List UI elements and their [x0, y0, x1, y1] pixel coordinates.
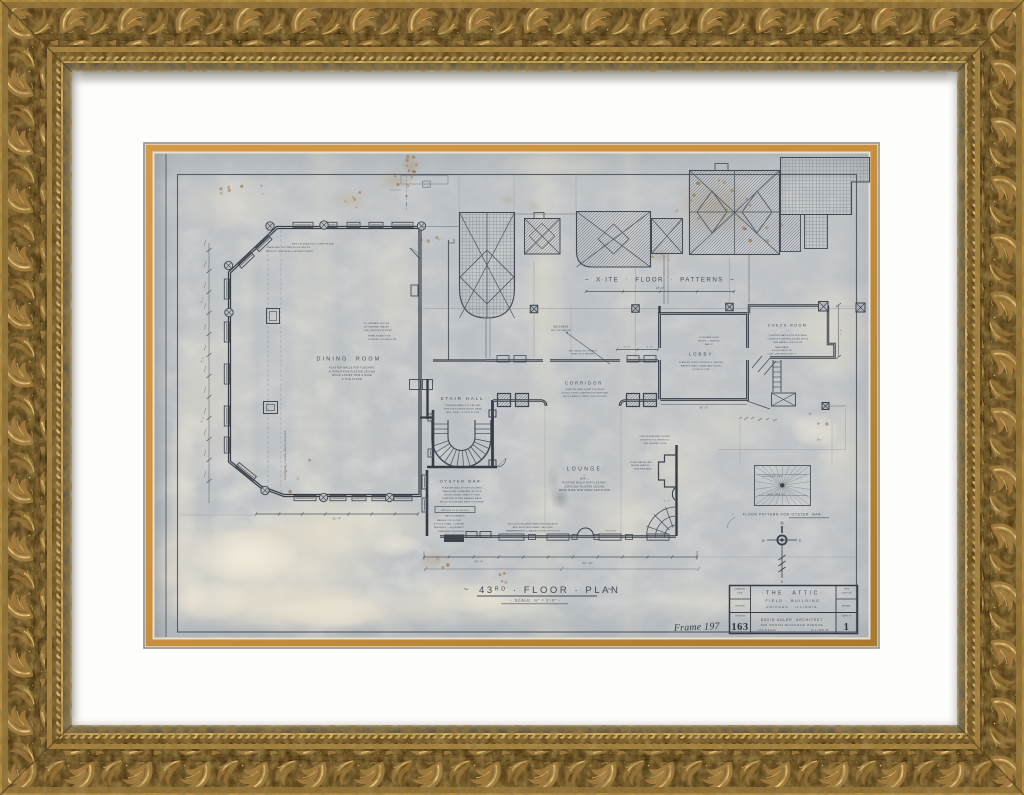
svg-text:31'-4″: 31'-4″ — [332, 518, 341, 521]
svg-text:~ X·ITE · FLOOR · PATTERN: ~ X·ITE · FLOOR · PATTERNS ~ — [585, 277, 736, 284]
svg-text:HERE FULL HEIGHT: HERE FULL HEIGHT — [572, 354, 596, 356]
svg-text:WEST ELEVATION & CORNICE AND: WEST ELEVATION & CORNICE AND — [292, 243, 335, 246]
svg-text:CHICAGO ILLINOIS·: CHICAGO ILLINOIS· — [766, 605, 820, 609]
svg-text:CORRIDOR: CORRIDOR — [565, 381, 603, 386]
svg-text:· SCALE ¼″ = 1′-0″ ·: · SCALE ¼″ = 1′-0″ · — [511, 599, 561, 603]
svg-text:6 INCH BLACK TILES: 6 INCH BLACK TILES — [762, 475, 783, 478]
svg-text:~: ~ — [732, 513, 734, 517]
svg-text:·LOBBY·: ·LOBBY· — [685, 352, 717, 357]
svg-text:DRAWN BY: DRAWN BY — [735, 588, 747, 591]
svg-text:PLASTERED COLUMN UNDER TRUSSES: PLASTERED COLUMN UNDER TRUSSES — [284, 430, 287, 480]
svg-text:PLASTER WALLS FOR FLECHING: PLASTER WALLS FOR FLECHING — [565, 388, 604, 391]
svg-text:STOOLS & RAIL COUNTER: STOOLS & RAIL COUNTER — [434, 522, 465, 525]
svg-text:1: 1 — [844, 622, 850, 633]
svg-text:·FLOOR PATTERN FOR OYSTER BAR: ·FLOOR PATTERN FOR OYSTER BAR· — [741, 513, 823, 517]
svg-text:CHICAGO: CHICAGO — [758, 628, 777, 632]
svg-text:WOOD FLOOR AND BACK COUNTER: WOOD FLOOR AND BACK COUNTER — [440, 501, 484, 504]
svg-text:DATE: DATE — [844, 588, 850, 591]
svg-text:CORNICE PLASTER CEILING WOOD: CORNICE PLASTER CEILING WOOD — [768, 337, 809, 340]
svg-text:4'-6″: 4'-6″ — [625, 347, 632, 349]
svg-text:BULKHEAD: BULKHEAD — [554, 326, 569, 329]
svg-text:S: S — [781, 580, 784, 584]
svg-text:W: W — [762, 539, 766, 543]
svg-text:DINING ROOM: DINING ROOM — [316, 357, 381, 363]
svg-text:·STAIR HALL·: ·STAIR HALL· — [437, 396, 488, 401]
svg-text:PLASTER WALLS FOR FLECHING: PLASTER WALLS FOR FLECHING — [442, 487, 482, 490]
svg-text:6′-0″: 6′-0″ — [664, 501, 670, 503]
svg-text:~: ~ — [464, 584, 469, 594]
svg-text:BAR □: BAR □ — [580, 477, 589, 480]
svg-text:·LOUNGE·: ·LOUNGE· — [563, 467, 607, 473]
svg-text:TO REPAIR LIGHT: TO REPAIR LIGHT — [699, 336, 720, 339]
svg-text:THE CHIMNEY FLUE: THE CHIMNEY FLUE — [643, 443, 667, 445]
svg-text:BAR 97: BAR 97 — [705, 343, 714, 346]
svg-text:AND BASE & TILE FLOOR: AND BASE & TILE FLOOR — [774, 341, 803, 344]
svg-text:PLASTER GLOBE MARBLE BASE: PLASTER GLOBE MARBLE BASE — [442, 497, 482, 500]
svg-text:~: ~ — [608, 584, 613, 594]
svg-text:PLASTER WALLS FOR FLECHING: PLASTER WALLS FOR FLECHING — [769, 334, 807, 337]
svg-text:MARBLE TOP FLOOR: MARBLE TOP FLOOR — [437, 519, 462, 522]
svg-text:LOW PLAN: LOW PLAN — [841, 592, 852, 595]
svg-text:SHELVING — EQUIPMENT: SHELVING — EQUIPMENT — [434, 527, 464, 529]
svg-text:FIELD BUILDING: FIELD BUILDING — [766, 599, 821, 603]
svg-text:24'-10″: 24'-10″ — [582, 562, 593, 565]
svg-text:PLASTER CORK CORNICE & CEILING: PLASTER CORK CORNICE & CEILING — [679, 361, 723, 364]
svg-text:54'-4″: 54'-4″ — [474, 561, 483, 564]
svg-text:REVISED: REVISED — [842, 606, 852, 608]
svg-text:IRON FIRE BACK: IRON FIRE BACK — [634, 467, 653, 470]
svg-text:HARDWARE: HARDWARE — [775, 346, 789, 349]
svg-text:& TILE FLOOR: & TILE FLOOR — [693, 369, 710, 371]
svg-text:ILLINOIS: ILLINOIS — [811, 628, 829, 632]
svg-text:SET OUT ABOVE: SET OUT ABOVE — [551, 329, 571, 332]
svg-text:ALTERNATIONS PLASTER CEILING: ALTERNATIONS PLASTER CEILING — [329, 370, 376, 373]
svg-text:PANEL BOARD FOR: PANEL BOARD FOR — [368, 334, 391, 337]
svg-text:WOOD CHAIRS TRIM & BASE: WOOD CHAIRS TRIM & BASE — [332, 374, 372, 377]
svg-text:·OYSTER BAR·: ·OYSTER BAR· — [437, 479, 485, 484]
svg-text:THE LIGHTING STRIPES: THE LIGHTING STRIPES — [364, 330, 392, 332]
svg-text:N: N — [780, 521, 783, 526]
svg-text:CORNICES PLASTER CEILING: CORNICES PLASTER CEILING — [564, 485, 604, 488]
svg-text:7'-6: 7'-6 — [841, 329, 843, 335]
svg-text:MARBLE WALLS BASE AND WOOD: MARBLE WALLS BASE AND WOOD — [681, 364, 722, 367]
svg-text:PLASTER WALLS FOR FLECHING: PLASTER WALLS FOR FLECHING — [562, 482, 606, 485]
svg-text:WOOD BASE TRIM SHELF AND FLOOR: WOOD BASE TRIM SHELF AND FLOOR — [559, 489, 610, 492]
svg-text:CHECK ROOM: CHECK ROOM — [768, 324, 807, 328]
svg-text:FINISH — PAINTED: FINISH — PAINTED — [698, 339, 720, 342]
svg-text:PLASTER WALLS & CEILING: PLASTER WALLS & CEILING — [445, 404, 480, 407]
svg-text:IN STAIRWAY TABLES: IN STAIRWAY TABLES — [364, 326, 389, 329]
svg-text:CHAIR RAIL PICTURE WOOD MOLDS: CHAIR RAIL PICTURE WOOD MOLDS — [266, 246, 311, 249]
svg-text:TO OPERATE CIRCUS: TO OPERATE CIRCUS — [364, 322, 390, 325]
svg-text:E: E — [799, 539, 802, 543]
svg-text:LIGHTING IN DINING RM: LIGHTING IN DINING RM — [368, 339, 396, 341]
svg-text:ART METAL BY OTHERS: ART METAL BY OTHERS — [569, 350, 597, 353]
svg-text:AND SHUTTERS PANEL HELLENIC: AND SHUTTERS PANEL HELLENIC — [513, 526, 554, 529]
svg-text:AND TRIM - & TILE FLOOR: AND TRIM - & TILE FLOOR — [446, 411, 479, 414]
svg-text:S.P.H.: S.P.H. — [737, 593, 743, 595]
svg-text:X'-X″: X'-X″ — [646, 347, 653, 349]
svg-text:SHEET Nº: SHEET Nº — [842, 615, 851, 618]
svg-text:WOOD BOOKCASES PANELING RADIAT: WOOD BOOKCASES PANELING RADIATOR — [508, 523, 558, 526]
svg-text:FACING HEARTH —: FACING HEARTH — — [631, 464, 652, 467]
svg-text:WOOD LINING SHELF & TRIM: WOOD LINING SHELF & TRIM — [444, 495, 479, 497]
svg-text:PANELLING STANDARD STOOLS: PANELLING STANDARD STOOLS — [442, 490, 481, 493]
svg-text:STONE MANTEL AND: STONE MANTEL AND — [629, 461, 652, 464]
svg-text:& TILE FLOOR: & TILE FLOOR — [342, 379, 362, 381]
svg-text:36'-2″: 36'-2″ — [699, 407, 708, 410]
svg-text:520 SOUTH MICHIGAN AVENUE: 520 SOUTH MICHIGAN AVENUE — [761, 623, 824, 627]
svg-text:·THE ATTIC·: ·THE ATTIC· — [762, 591, 825, 597]
svg-text:15'-0″: 15'-0″ — [656, 286, 664, 290]
svg-text:STANDARD EQUIPMENT ≈: STANDARD EQUIPMENT ≈ — [438, 530, 469, 533]
svg-text:BAR EQUIPMENT: BAR EQUIPMENT — [445, 515, 465, 518]
svg-text:□: □ — [787, 329, 789, 332]
svg-text:2 HOUR BURNING OUTLET: 2 HOUR BURNING OUTLET — [640, 436, 672, 438]
svg-text:Frame 197: Frame 197 — [673, 621, 721, 634]
svg-text:WITH PILOT & WIRED TO: WITH PILOT & WIRED TO — [641, 439, 670, 441]
svg-text:FLOOR CORK COMPOSITION PAINTIN: FLOOR CORK COMPOSITION PAINTING — [562, 391, 609, 394]
svg-text:COAT CHECKING SYST ℠: COAT CHECKING SYST ℠ — [767, 353, 796, 356]
svg-text:WHITE TILES 6 IN: WHITE TILES 6 IN — [767, 494, 785, 496]
svg-text:FOR FLETCHERS WOOD BASE: FOR FLETCHERS WOOD BASE — [444, 408, 482, 411]
svg-text:PLASTER WALLS FOR FLECHING: PLASTER WALLS FOR FLECHING — [329, 367, 375, 370]
svg-text:163: 163 — [731, 622, 748, 633]
svg-text:WOOD BASE & TRIM & TILE FLOORS: WOOD BASE & TRIM & TILE FLOORS — [563, 395, 607, 398]
svg-text:ORDER Nº: ORDER Nº — [735, 615, 745, 618]
svg-text:□: □ — [583, 474, 585, 477]
svg-text:DAVID ADLER ARCHITECT: DAVID ADLER ARCHITECT — [761, 618, 823, 622]
svg-text:FRENCH FILM CEILING: FRENCH FILM CEILING — [441, 510, 469, 512]
svg-text:CHECKED: CHECKED — [735, 606, 745, 608]
svg-text:WINDOW TRIM SEE EQUIPMENT PRIN: WINDOW TRIM SEE EQUIPMENT PRINT — [266, 251, 314, 253]
svg-text:& EQUIPMENT BY: & EQUIPMENT BY — [772, 350, 793, 352]
svg-text:TROPHY: TROPHY — [605, 531, 617, 533]
svg-text:WINDOW SEATS & WAINSCOTING PRO: WINDOW SEATS & WAINSCOTING PROJECTS — [506, 530, 560, 533]
